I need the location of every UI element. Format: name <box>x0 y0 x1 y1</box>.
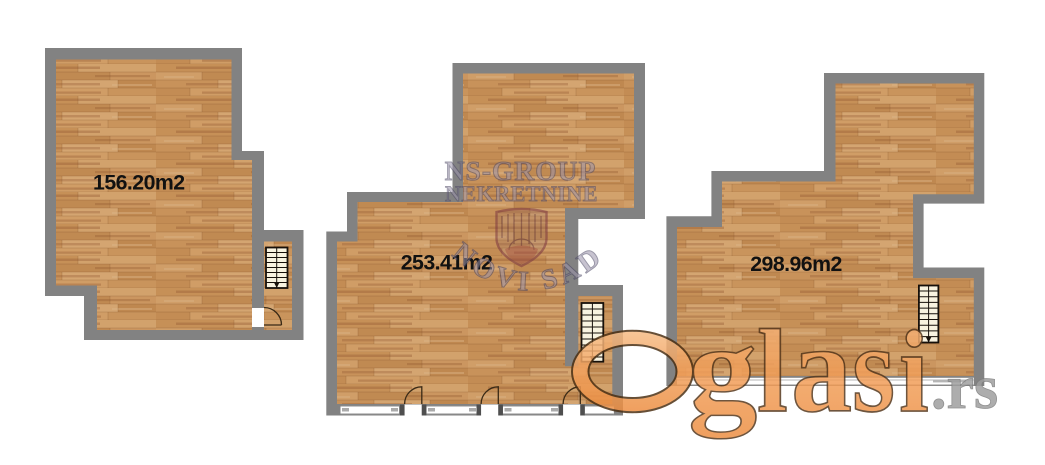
svg-text:i: i <box>899 308 929 437</box>
svg-text:298.96m2: 298.96m2 <box>750 252 842 276</box>
svg-text:.rs: .rs <box>931 354 998 422</box>
svg-text:NEKRETNINE: NEKRETNINE <box>445 181 598 206</box>
svg-text:a: a <box>791 298 852 438</box>
svg-text:156.20m2: 156.20m2 <box>93 171 185 195</box>
svg-text:l: l <box>757 304 788 436</box>
svg-text:s: s <box>852 298 895 438</box>
svg-text:g: g <box>688 299 757 439</box>
